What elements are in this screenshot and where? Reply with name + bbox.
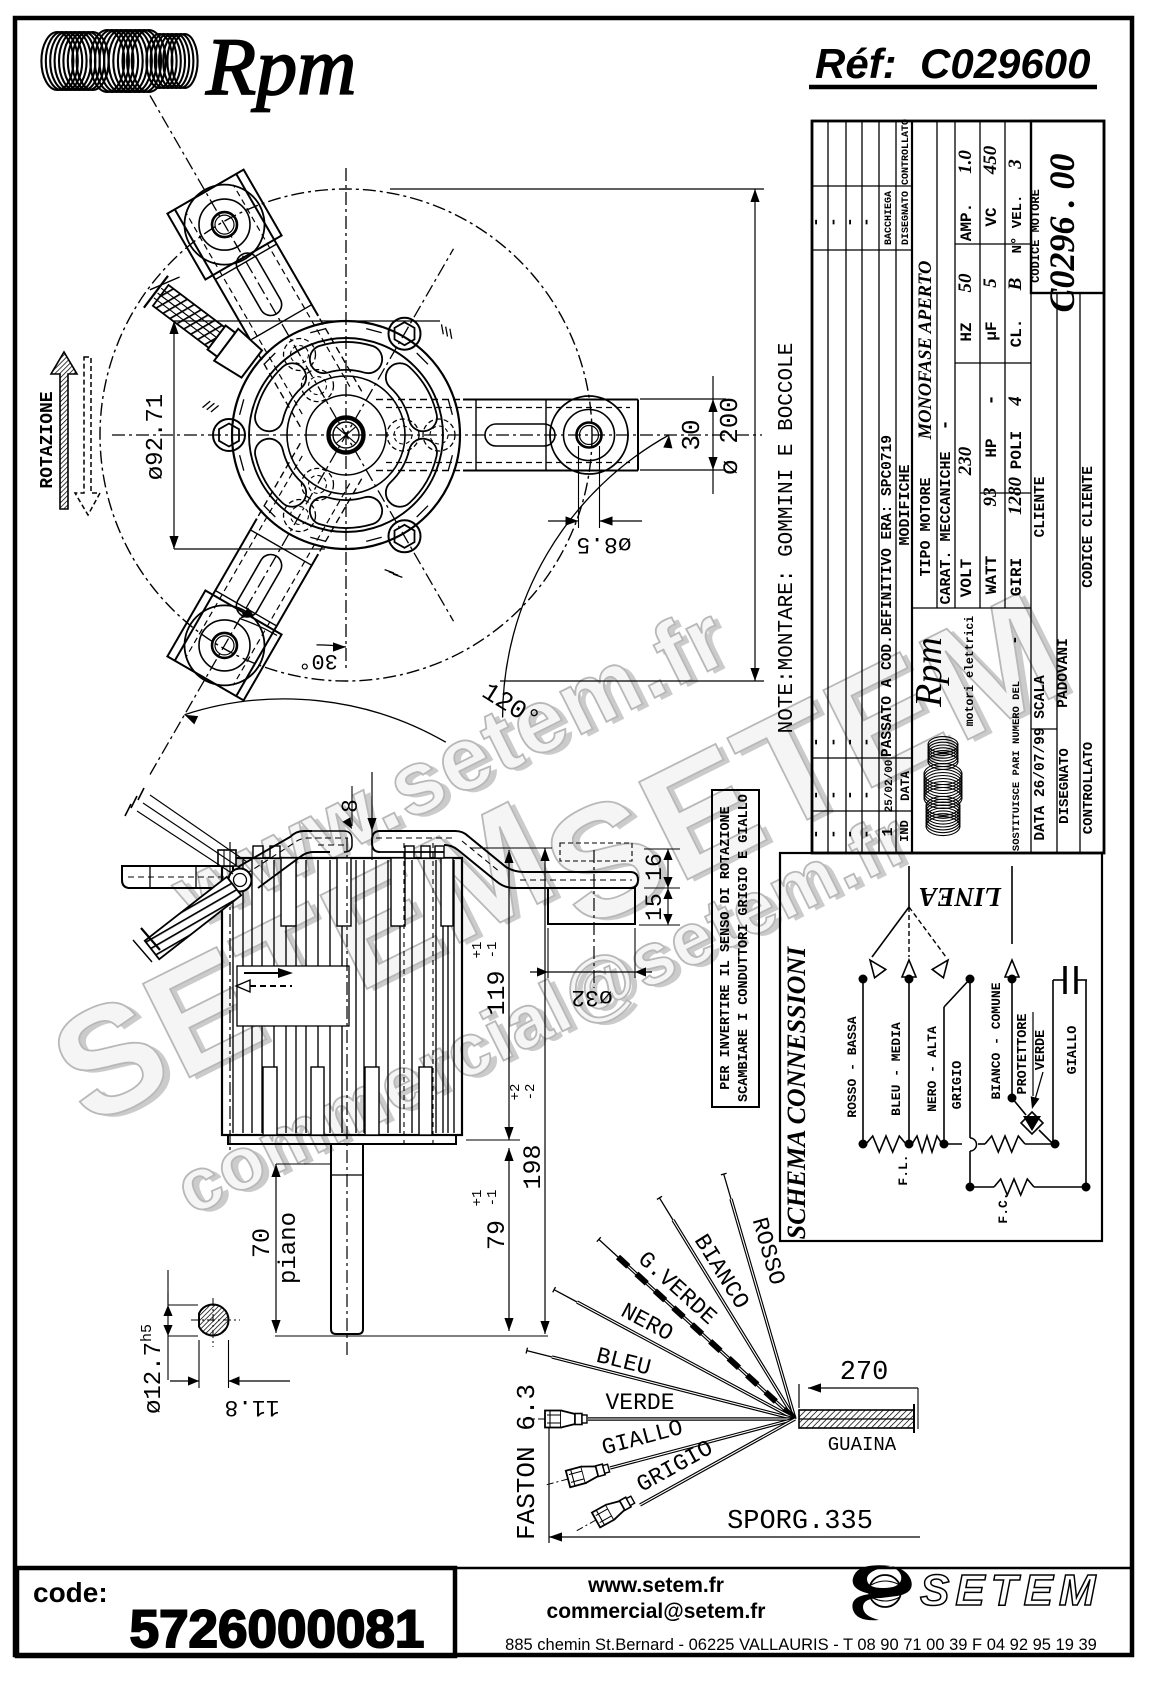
svg-text:-: -: [858, 737, 876, 747]
svg-text:-: -: [825, 737, 843, 747]
svg-text:WATT: WATT: [983, 555, 1001, 594]
svg-text:SETEM: SETEM: [920, 1566, 1102, 1615]
svg-text:Rpm: Rpm: [205, 21, 356, 112]
svg-text:-2: -2: [523, 1084, 539, 1101]
svg-text:CODICE CLIENTE: CODICE CLIENTE: [1081, 466, 1097, 588]
svg-text:Rpm: Rpm: [908, 637, 950, 708]
svg-text:F.C.: F.C.: [996, 1192, 1011, 1223]
svg-text:MODIFICHE: MODIFICHE: [897, 464, 914, 545]
svg-text:CONTROLLATO: CONTROLLATO: [1081, 742, 1097, 834]
svg-text:ø 200: ø 200: [715, 397, 745, 475]
svg-text:piano: piano: [276, 1212, 303, 1284]
svg-text:+2: +2: [508, 1084, 524, 1101]
svg-text:MONOFASE APERTO: MONOFASE APERTO: [916, 261, 936, 441]
svg-text:-1: -1: [485, 1190, 501, 1207]
svg-text:HP: HP: [983, 438, 1001, 457]
svg-text:1.0: 1.0: [955, 150, 976, 174]
svg-text:SPORG.335: SPORG.335: [727, 1507, 873, 1537]
svg-text:1: 1: [880, 827, 897, 836]
svg-text:PASSATO A COD.DEFINITIVO ERA:: PASSATO A COD.DEFINITIVO ERA: SPC0719: [880, 435, 896, 757]
svg-text:270: 270: [840, 1358, 889, 1388]
svg-text:SOSTITUISCE PARI NUMERO DEL: SOSTITUISCE PARI NUMERO DEL: [1011, 681, 1023, 851]
svg-text:h5: h5: [139, 1324, 156, 1342]
svg-text:79: 79: [483, 1220, 512, 1250]
svg-text:BACCHIEGA: BACCHIEGA: [884, 191, 895, 245]
svg-text:DATA: DATA: [899, 771, 913, 802]
svg-text:+1: +1: [470, 1190, 486, 1207]
svg-text:motori elettrici: motori elettrici: [964, 616, 977, 727]
svg-text:-: -: [825, 217, 843, 227]
svg-text:VERDE: VERDE: [605, 1390, 674, 1416]
svg-text:CONTROLLATO: CONTROLLATO: [901, 119, 912, 185]
svg-text:119: 119: [483, 970, 512, 1015]
svg-text:VC: VC: [983, 207, 1001, 227]
svg-text:-: -: [841, 217, 859, 227]
svg-text:3: 3: [1005, 159, 1026, 170]
svg-text:1280: 1280: [1005, 477, 1026, 516]
svg-text:-: -: [1006, 635, 1024, 645]
svg-text:-: -: [982, 395, 1002, 406]
svg-text:DISEGNATO: DISEGNATO: [1057, 748, 1073, 824]
svg-text:code:: code:: [33, 1577, 108, 1608]
svg-text:IND: IND: [898, 820, 912, 842]
svg-text:16: 16: [642, 853, 668, 881]
svg-text:BLEU - MEDIA: BLEU - MEDIA: [889, 1022, 904, 1116]
svg-text:www.setem.fr: www.setem.fr: [587, 1574, 724, 1597]
svg-text:µF: µF: [983, 321, 1001, 340]
svg-text:C0296 . 00: C0296 . 00: [1042, 153, 1082, 312]
svg-text:SCAMBIARE I CONDUTTORI GRIGIO: SCAMBIARE I CONDUTTORI GRIGIO E GIALLO: [737, 794, 752, 1102]
svg-text:GIRI: GIRI: [1008, 558, 1026, 596]
svg-text:ø32: ø32: [571, 984, 612, 1010]
svg-text:N° VEL.: N° VEL.: [1010, 195, 1026, 254]
svg-text:5726000081: 5726000081: [130, 1600, 425, 1659]
svg-text:-1: -1: [485, 942, 501, 959]
svg-text:GUAINA: GUAINA: [828, 1434, 897, 1456]
svg-text:NERO - ALTA: NERO - ALTA: [925, 1026, 940, 1112]
svg-text:-: -: [858, 790, 876, 800]
svg-text:VERDE: VERDE: [1034, 1030, 1049, 1071]
svg-text:-: -: [841, 737, 859, 747]
svg-text:PADOVANI: PADOVANI: [1056, 638, 1072, 708]
svg-text:DATA 26/07/99: DATA 26/07/99: [1033, 727, 1049, 840]
svg-text:GIALLO: GIALLO: [1066, 1026, 1081, 1075]
svg-text:CODICE MOTORE: CODICE MOTORE: [1029, 189, 1043, 283]
svg-text:SCALA: SCALA: [1033, 675, 1049, 719]
svg-text:ø12.7: ø12.7: [141, 1342, 168, 1414]
svg-text:AMP.: AMP.: [958, 203, 976, 241]
svg-text:11.8: 11.8: [224, 1394, 279, 1420]
svg-text:POLI: POLI: [1008, 431, 1026, 469]
svg-text:BIANCO - COMUNE: BIANCO - COMUNE: [989, 982, 1004, 1099]
svg-text:885 chemin St.Bernard - 0622: 885 chemin St.Bernard - 06225 VALLAURIS …: [505, 1636, 1097, 1654]
svg-text:PER INVERTIRE IL SENSO DI ROTA: PER INVERTIRE IL SENSO DI ROTAZIONE: [719, 806, 734, 1090]
svg-text:ø8.5: ø8.5: [576, 531, 631, 557]
svg-text:-: -: [825, 790, 843, 800]
svg-text:SCHEMA CONNESSIONI: SCHEMA CONNESSIONI: [782, 946, 811, 1239]
svg-text:-: -: [807, 737, 825, 747]
svg-text:30°: 30°: [298, 648, 338, 673]
svg-text:230: 230: [955, 446, 976, 476]
svg-text:-: -: [858, 217, 876, 227]
svg-text:-: -: [825, 829, 843, 839]
svg-text:TIPO MOTORE: TIPO MOTORE: [918, 477, 935, 576]
svg-text:commercial@setem.fr: commercial@setem.fr: [547, 1600, 766, 1623]
svg-text:B: B: [1005, 278, 1026, 292]
svg-text:+1: +1: [470, 942, 486, 959]
svg-text:FASTON 6.3: FASTON 6.3: [512, 1384, 542, 1540]
svg-text:CLIENTE: CLIENTE: [1033, 476, 1049, 537]
svg-text:ROTAZIONE: ROTAZIONE: [38, 391, 58, 488]
svg-text:450: 450: [980, 145, 1001, 175]
svg-text:DISEGNATO: DISEGNATO: [901, 191, 912, 245]
svg-text:5: 5: [980, 278, 1001, 288]
svg-text:LINEA: LINEA: [919, 882, 1003, 912]
svg-text:-: -: [807, 217, 825, 227]
svg-text:CL.: CL.: [1008, 319, 1026, 348]
svg-text:-: -: [807, 790, 825, 800]
svg-text:ø92.71: ø92.71: [143, 394, 170, 480]
svg-text:-: -: [936, 420, 956, 431]
svg-text:198: 198: [519, 1144, 548, 1189]
svg-text:93: 93: [980, 488, 1001, 507]
svg-text:-: -: [807, 829, 825, 839]
svg-text:30: 30: [677, 419, 707, 450]
svg-text:HZ: HZ: [958, 322, 976, 341]
svg-text:15: 15: [642, 893, 668, 921]
svg-text:4: 4: [1005, 396, 1026, 407]
svg-text:ROSSO - BASSA: ROSSO - BASSA: [845, 1016, 860, 1118]
svg-text:8: 8: [338, 799, 364, 813]
svg-text:PROTETTORE: PROTETTORE: [1016, 1013, 1031, 1094]
svg-text:50: 50: [955, 273, 976, 293]
svg-text:-: -: [858, 829, 876, 839]
svg-text:Réf: C029600: Réf: C029600: [815, 40, 1090, 87]
svg-text:70: 70: [248, 1228, 277, 1258]
svg-text:25/02/00: 25/02/00: [884, 760, 896, 813]
svg-text:GRIGIO: GRIGIO: [951, 1061, 966, 1110]
svg-text:-: -: [841, 790, 859, 800]
svg-text:NOTE:MONTARE: GOMMINI E BOCCOL: NOTE:MONTARE: GOMMINI E BOCCOLE: [776, 343, 799, 734]
svg-text:F.L.: F.L.: [896, 1154, 911, 1185]
svg-text:-: -: [841, 829, 859, 839]
svg-text:CARAT. MECCANICHE: CARAT. MECCANICHE: [938, 451, 955, 604]
svg-text:VOLT: VOLT: [958, 558, 976, 597]
